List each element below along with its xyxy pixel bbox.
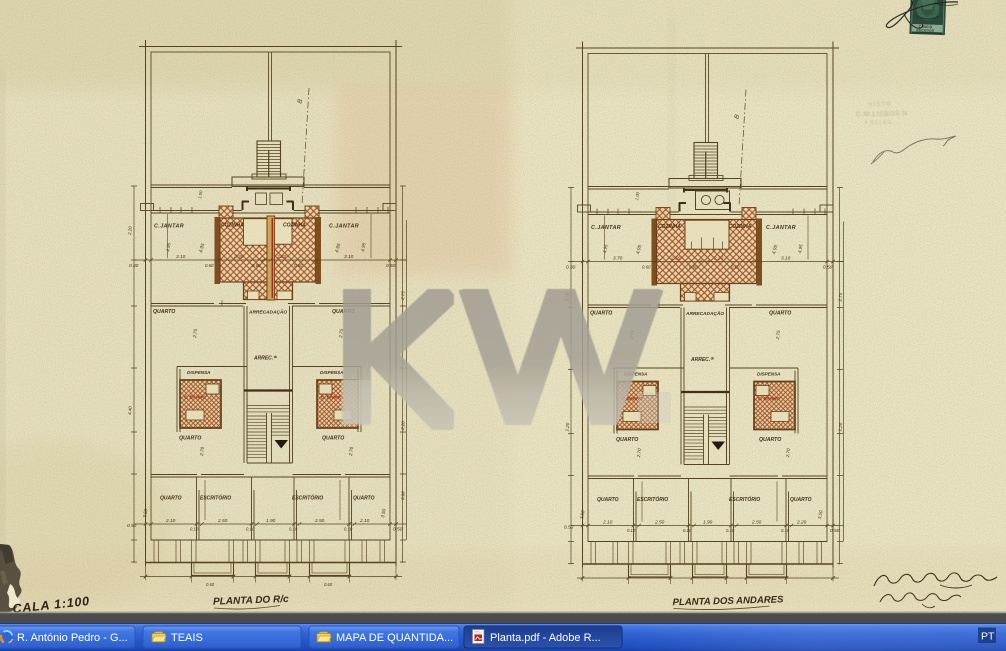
svg-text:0.50: 0.50 [830, 528, 840, 534]
svg-text:3.10: 3.10 [781, 256, 791, 262]
svg-text:0.60: 0.60 [206, 582, 215, 587]
svg-text:ARREC.⁰º: ARREC.⁰º [253, 356, 278, 362]
svg-text:C. BANHO: C. BANHO [758, 396, 780, 401]
svg-text:QUARTO: QUARTO [322, 436, 344, 442]
svg-text:4 DELEG.: 4 DELEG. [864, 120, 895, 127]
svg-text:QUARTO: QUARTO [590, 311, 612, 317]
svg-text:2.20: 2.20 [713, 256, 724, 262]
svg-text:3.10: 3.10 [344, 254, 354, 260]
svg-text:C. BANHO: C. BANHO [321, 395, 343, 400]
svg-text:ARREC.⁰º: ARREC.⁰º [690, 357, 715, 363]
svg-text:2.50: 2.50 [751, 520, 762, 526]
svg-text:C. BANHO: C. BANHO [184, 395, 206, 400]
svg-text:QUARTO: QUARTO [616, 437, 638, 443]
svg-text:2.10: 2.10 [602, 520, 613, 526]
svg-text:COZINHA: COZINHA [221, 223, 244, 229]
svg-text:0.60: 0.60 [689, 265, 698, 270]
svg-text:TEAIS: TEAIS [171, 632, 203, 644]
svg-text:C.M.LISBOA N: C.M.LISBOA N [856, 111, 908, 119]
svg-text:2.20: 2.20 [564, 422, 570, 433]
svg-text:2.75: 2.75 [837, 292, 843, 303]
svg-text:2.10: 2.10 [359, 518, 370, 524]
svg-text:QUARTO: QUARTO [790, 497, 812, 503]
svg-text:QUARTO: QUARTO [353, 496, 375, 502]
svg-text:0.10: 0.10 [683, 528, 692, 533]
svg-text:ESCRITÓRIO: ESCRITÓRIO [200, 495, 231, 502]
svg-text:0.88: 0.88 [400, 491, 406, 501]
svg-text:C.JANTAR: C.JANTAR [329, 224, 359, 230]
svg-text:PT: PT [981, 631, 995, 643]
svg-text:QUARTO: QUARTO [153, 309, 175, 315]
svg-text:2.20: 2.20 [127, 226, 133, 237]
svg-text:QUARTO: QUARTO [160, 496, 182, 502]
svg-text:0.50: 0.50 [823, 265, 833, 271]
svg-text:QUARTO: QUARTO [597, 497, 619, 503]
svg-text:2.30: 2.30 [233, 254, 244, 260]
svg-text:C.JANTAR: C.JANTAR [154, 224, 184, 230]
svg-text:4.40: 4.40 [127, 406, 133, 416]
svg-text:0.10: 0.10 [289, 527, 298, 532]
svg-text:QUARTO: QUARTO [759, 437, 781, 443]
svg-text:QUARTO: QUARTO [179, 436, 201, 442]
svg-text:2.20: 2.20 [276, 254, 287, 260]
svg-text:0.60: 0.60 [252, 263, 261, 268]
svg-text:DISPENSA: DISPENSA [187, 370, 211, 375]
svg-text:C.JANTAR: C.JANTAR [766, 225, 796, 231]
svg-text:0.10: 0.10 [190, 527, 199, 532]
svg-text:2.20: 2.20 [796, 520, 807, 526]
svg-text:0.10: 0.10 [246, 527, 255, 532]
svg-text:0.60: 0.60 [205, 263, 214, 268]
svg-text:0.60: 0.60 [642, 265, 651, 270]
svg-text:1.90: 1.90 [266, 518, 276, 524]
svg-text:2.50: 2.50 [654, 520, 665, 526]
svg-text:0.60: 0.60 [324, 582, 333, 587]
svg-text:2.50: 2.50 [217, 518, 228, 524]
svg-text:0.10: 0.10 [726, 528, 735, 533]
svg-text:COZINHA: COZINHA [283, 223, 306, 229]
svg-text:ARRECADAÇÃO: ARRECADAÇÃO [685, 310, 724, 317]
svg-text:DISPENSA: DISPENSA [320, 370, 344, 375]
svg-text:3.10: 3.10 [176, 254, 186, 260]
svg-text:ESCRITÓRIO: ESCRITÓRIO [729, 496, 760, 503]
svg-text:2.75: 2.75 [400, 291, 406, 302]
svg-text:0.50: 0.50 [386, 263, 396, 269]
svg-text:R. António Pedro - G...: R. António Pedro - G... [17, 632, 128, 644]
svg-text:0.10: 0.10 [627, 528, 636, 533]
svg-text:C.JANTAR: C.JANTAR [591, 225, 621, 231]
svg-text:ESCRITÓRIO: ESCRITÓRIO [637, 496, 668, 503]
svg-text:2.20: 2.20 [400, 421, 406, 432]
svg-text:0.10: 0.10 [344, 527, 353, 532]
svg-text:0.50: 0.50 [127, 523, 137, 529]
svg-text:COZINHA: COZINHA [658, 224, 681, 230]
svg-text:0.50: 0.50 [564, 525, 574, 531]
svg-text:VISTO: VISTO [869, 102, 892, 108]
svg-text:DISPENSA: DISPENSA [757, 372, 781, 377]
svg-text:2.30: 2.30 [670, 256, 681, 262]
svg-text:ARRECADAÇÃO: ARRECADAÇÃO [248, 309, 287, 316]
svg-text:3.70: 3.70 [613, 256, 623, 262]
svg-text:2.10: 2.10 [165, 518, 176, 524]
svg-text:0.60: 0.60 [731, 265, 740, 270]
svg-text:COZINHA: COZINHA [729, 224, 752, 230]
svg-text:1.90: 1.90 [703, 520, 713, 526]
svg-text:ESCRITÓRIO: ESCRITÓRIO [292, 495, 323, 502]
svg-text:0.10: 0.10 [781, 528, 790, 533]
svg-text:Planta.pdf - Adobe R...: Planta.pdf - Adobe R... [490, 632, 601, 644]
svg-text:2.50: 2.50 [314, 518, 325, 524]
svg-text:QUARTO: QUARTO [769, 311, 791, 317]
svg-text:MAPA DE QUANTIDA...: MAPA DE QUANTIDA... [336, 632, 453, 644]
svg-text:0.50: 0.50 [393, 527, 403, 533]
svg-text:2.20: 2.20 [837, 422, 843, 433]
svg-text:0.60: 0.60 [294, 263, 303, 268]
